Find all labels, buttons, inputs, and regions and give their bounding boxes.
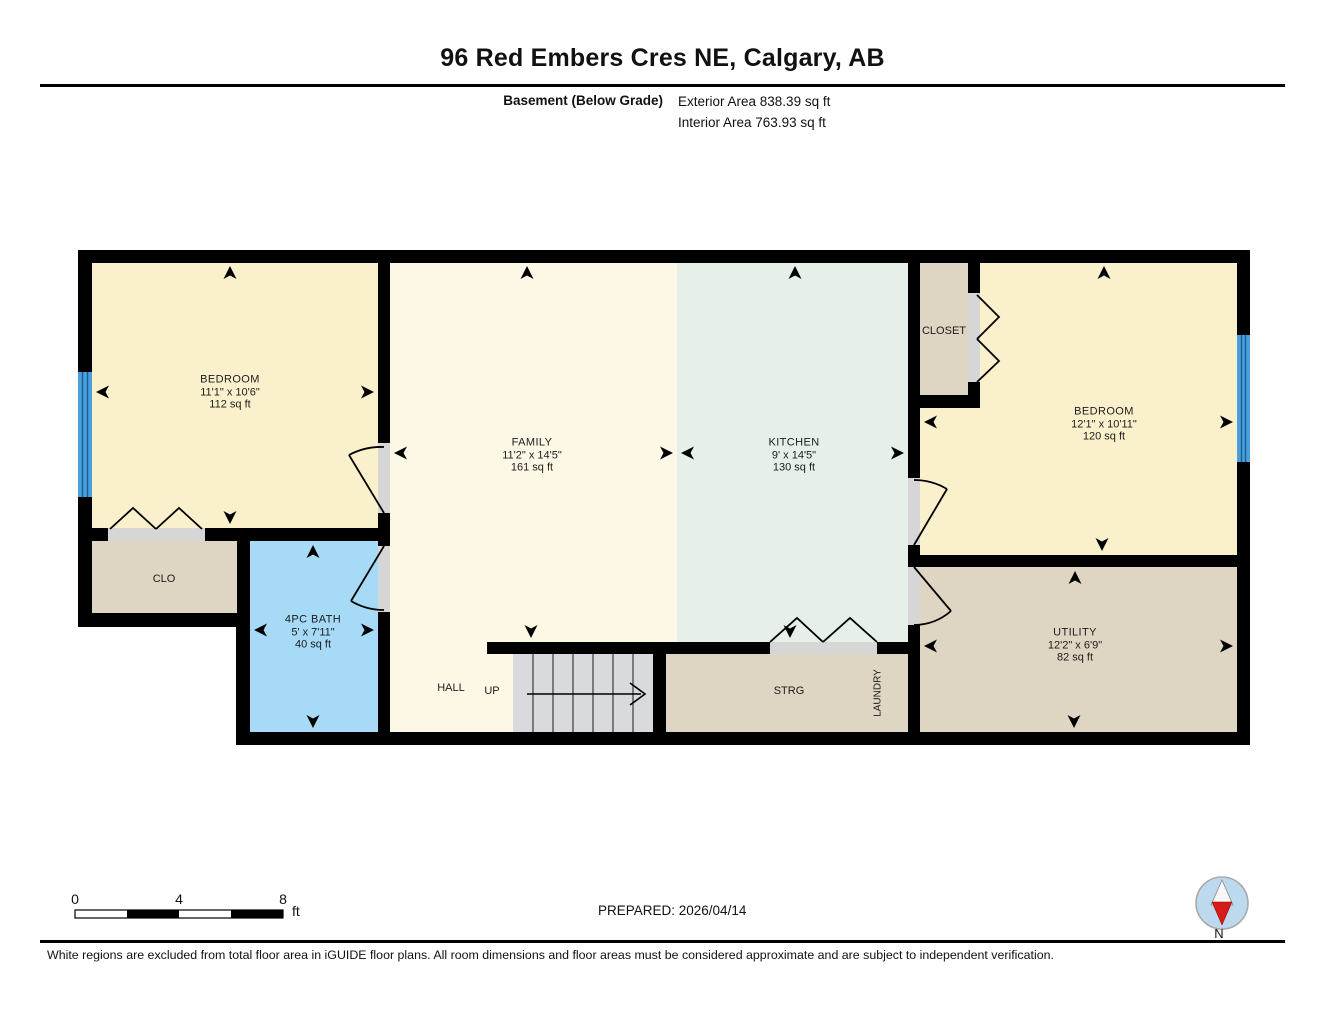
room-label-strg: STRG xyxy=(774,685,805,697)
scale-tick-8: 8 xyxy=(279,891,287,907)
compass-icon xyxy=(1196,877,1248,929)
room-label-kitchen: KITCHEN 9' x 14'5" 130 sq ft xyxy=(768,436,819,474)
room-label-clo: CLO xyxy=(153,573,176,585)
prepared-date: PREPARED: 2026/04/14 xyxy=(598,903,746,918)
disclaimer-text: White regions are excluded from total fl… xyxy=(47,948,1297,962)
scale-tick-4: 4 xyxy=(175,891,183,907)
room-label-utility: UTILITY 12'2" x 6'9" 82 sq ft xyxy=(1048,626,1102,664)
bedroom-right-window xyxy=(1237,335,1250,462)
compass-north-label: N xyxy=(1214,926,1223,941)
floor-plan-page: 96 Red Embers Cres NE, Calgary, AB Basem… xyxy=(0,0,1325,1024)
room-label-family: FAMILY 11'2" x 14'5" 161 sq ft xyxy=(502,436,562,474)
room-label-laundry: LAUNDRY xyxy=(873,669,884,717)
room-label-hall: HALL xyxy=(437,682,465,694)
footer-divider xyxy=(40,940,1285,943)
floor-plan-drawing xyxy=(0,0,1325,1024)
bedroom-left-window xyxy=(78,372,92,497)
room-label-closet: CLOSET xyxy=(922,325,966,337)
room-label-bedroom-right: BEDROOM 12'1" x 10'11" 120 sq ft xyxy=(1071,405,1137,443)
stairs-up-label: UP xyxy=(484,685,499,697)
scale-unit: ft xyxy=(292,903,300,919)
scale-tick-0: 0 xyxy=(71,891,79,907)
stairs-floor xyxy=(513,654,653,732)
scale-bar xyxy=(75,910,283,918)
room-label-bath: 4PC BATH 5' x 7'11" 40 sq ft xyxy=(285,613,341,651)
room-label-bedroom-left: BEDROOM 11'1" x 10'6" 112 sq ft xyxy=(200,373,260,411)
